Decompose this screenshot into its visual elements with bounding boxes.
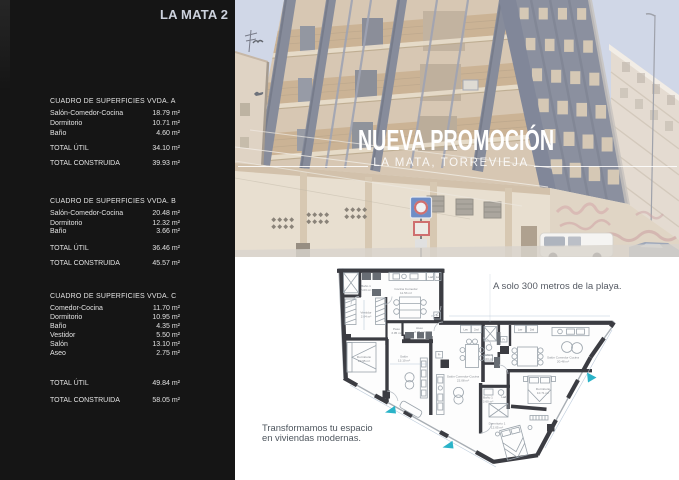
svg-text:10.95 m²: 10.95 m²	[358, 359, 370, 363]
svg-text:3.60 m²: 3.60 m²	[483, 400, 494, 404]
svg-text:Lav: Lav	[518, 328, 523, 332]
svg-text:2xd: 2xd	[474, 328, 479, 332]
svg-text:2.75 m²: 2.75 m²	[414, 330, 425, 334]
svg-text:2.04 m²: 2.04 m²	[361, 315, 372, 319]
svg-text:Lad: Lad	[501, 395, 506, 399]
svg-text:13.10 m²: 13.10 m²	[398, 359, 410, 363]
svg-text:Fr: Fr	[502, 338, 505, 342]
svg-text:10.71 m²: 10.71 m²	[537, 391, 549, 395]
svg-text:22.08 m²: 22.08 m²	[457, 379, 469, 383]
svg-text:Fr: Fr	[436, 314, 439, 318]
svg-text:4.03 m²: 4.03 m²	[483, 357, 494, 361]
svg-text:12.05 m²: 12.05 m²	[491, 426, 503, 430]
svg-text:Lav: Lav	[436, 275, 441, 279]
svg-text:20.48 m²: 20.48 m²	[557, 360, 569, 364]
svg-text:11.53 m²: 11.53 m²	[400, 291, 412, 295]
svg-text:2xd: 2xd	[530, 328, 535, 332]
svg-text:Lav: Lav	[464, 328, 469, 332]
svg-text:8.03 m²: 8.03 m²	[361, 288, 372, 292]
svg-text:Fr: Fr	[438, 353, 441, 357]
svg-text:Lad: Lad	[428, 275, 433, 279]
svg-text:3.05 m²: 3.05 m²	[391, 331, 402, 335]
